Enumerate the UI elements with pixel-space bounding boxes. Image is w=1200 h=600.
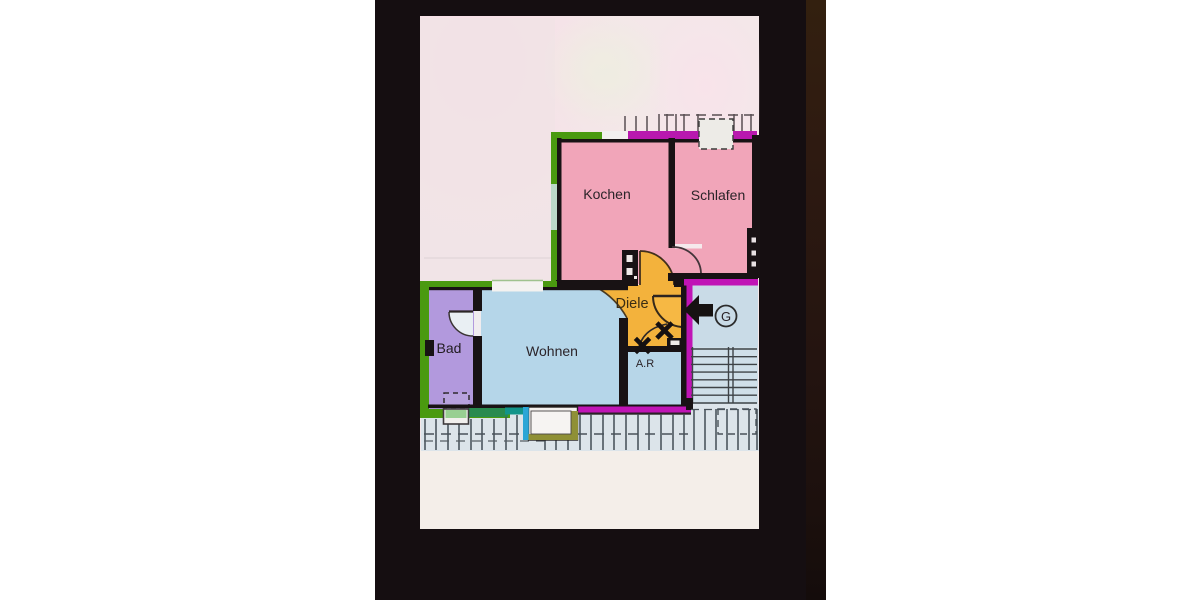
svg-text:Wohnen: Wohnen bbox=[526, 343, 578, 359]
svg-text:Diele: Diele bbox=[615, 296, 648, 312]
svg-text:Kochen: Kochen bbox=[583, 186, 630, 202]
svg-text:Bad: Bad bbox=[437, 340, 462, 356]
svg-text:A.R: A.R bbox=[636, 358, 654, 370]
svg-text:G: G bbox=[721, 309, 731, 324]
svg-text:Schlafen: Schlafen bbox=[691, 187, 745, 203]
